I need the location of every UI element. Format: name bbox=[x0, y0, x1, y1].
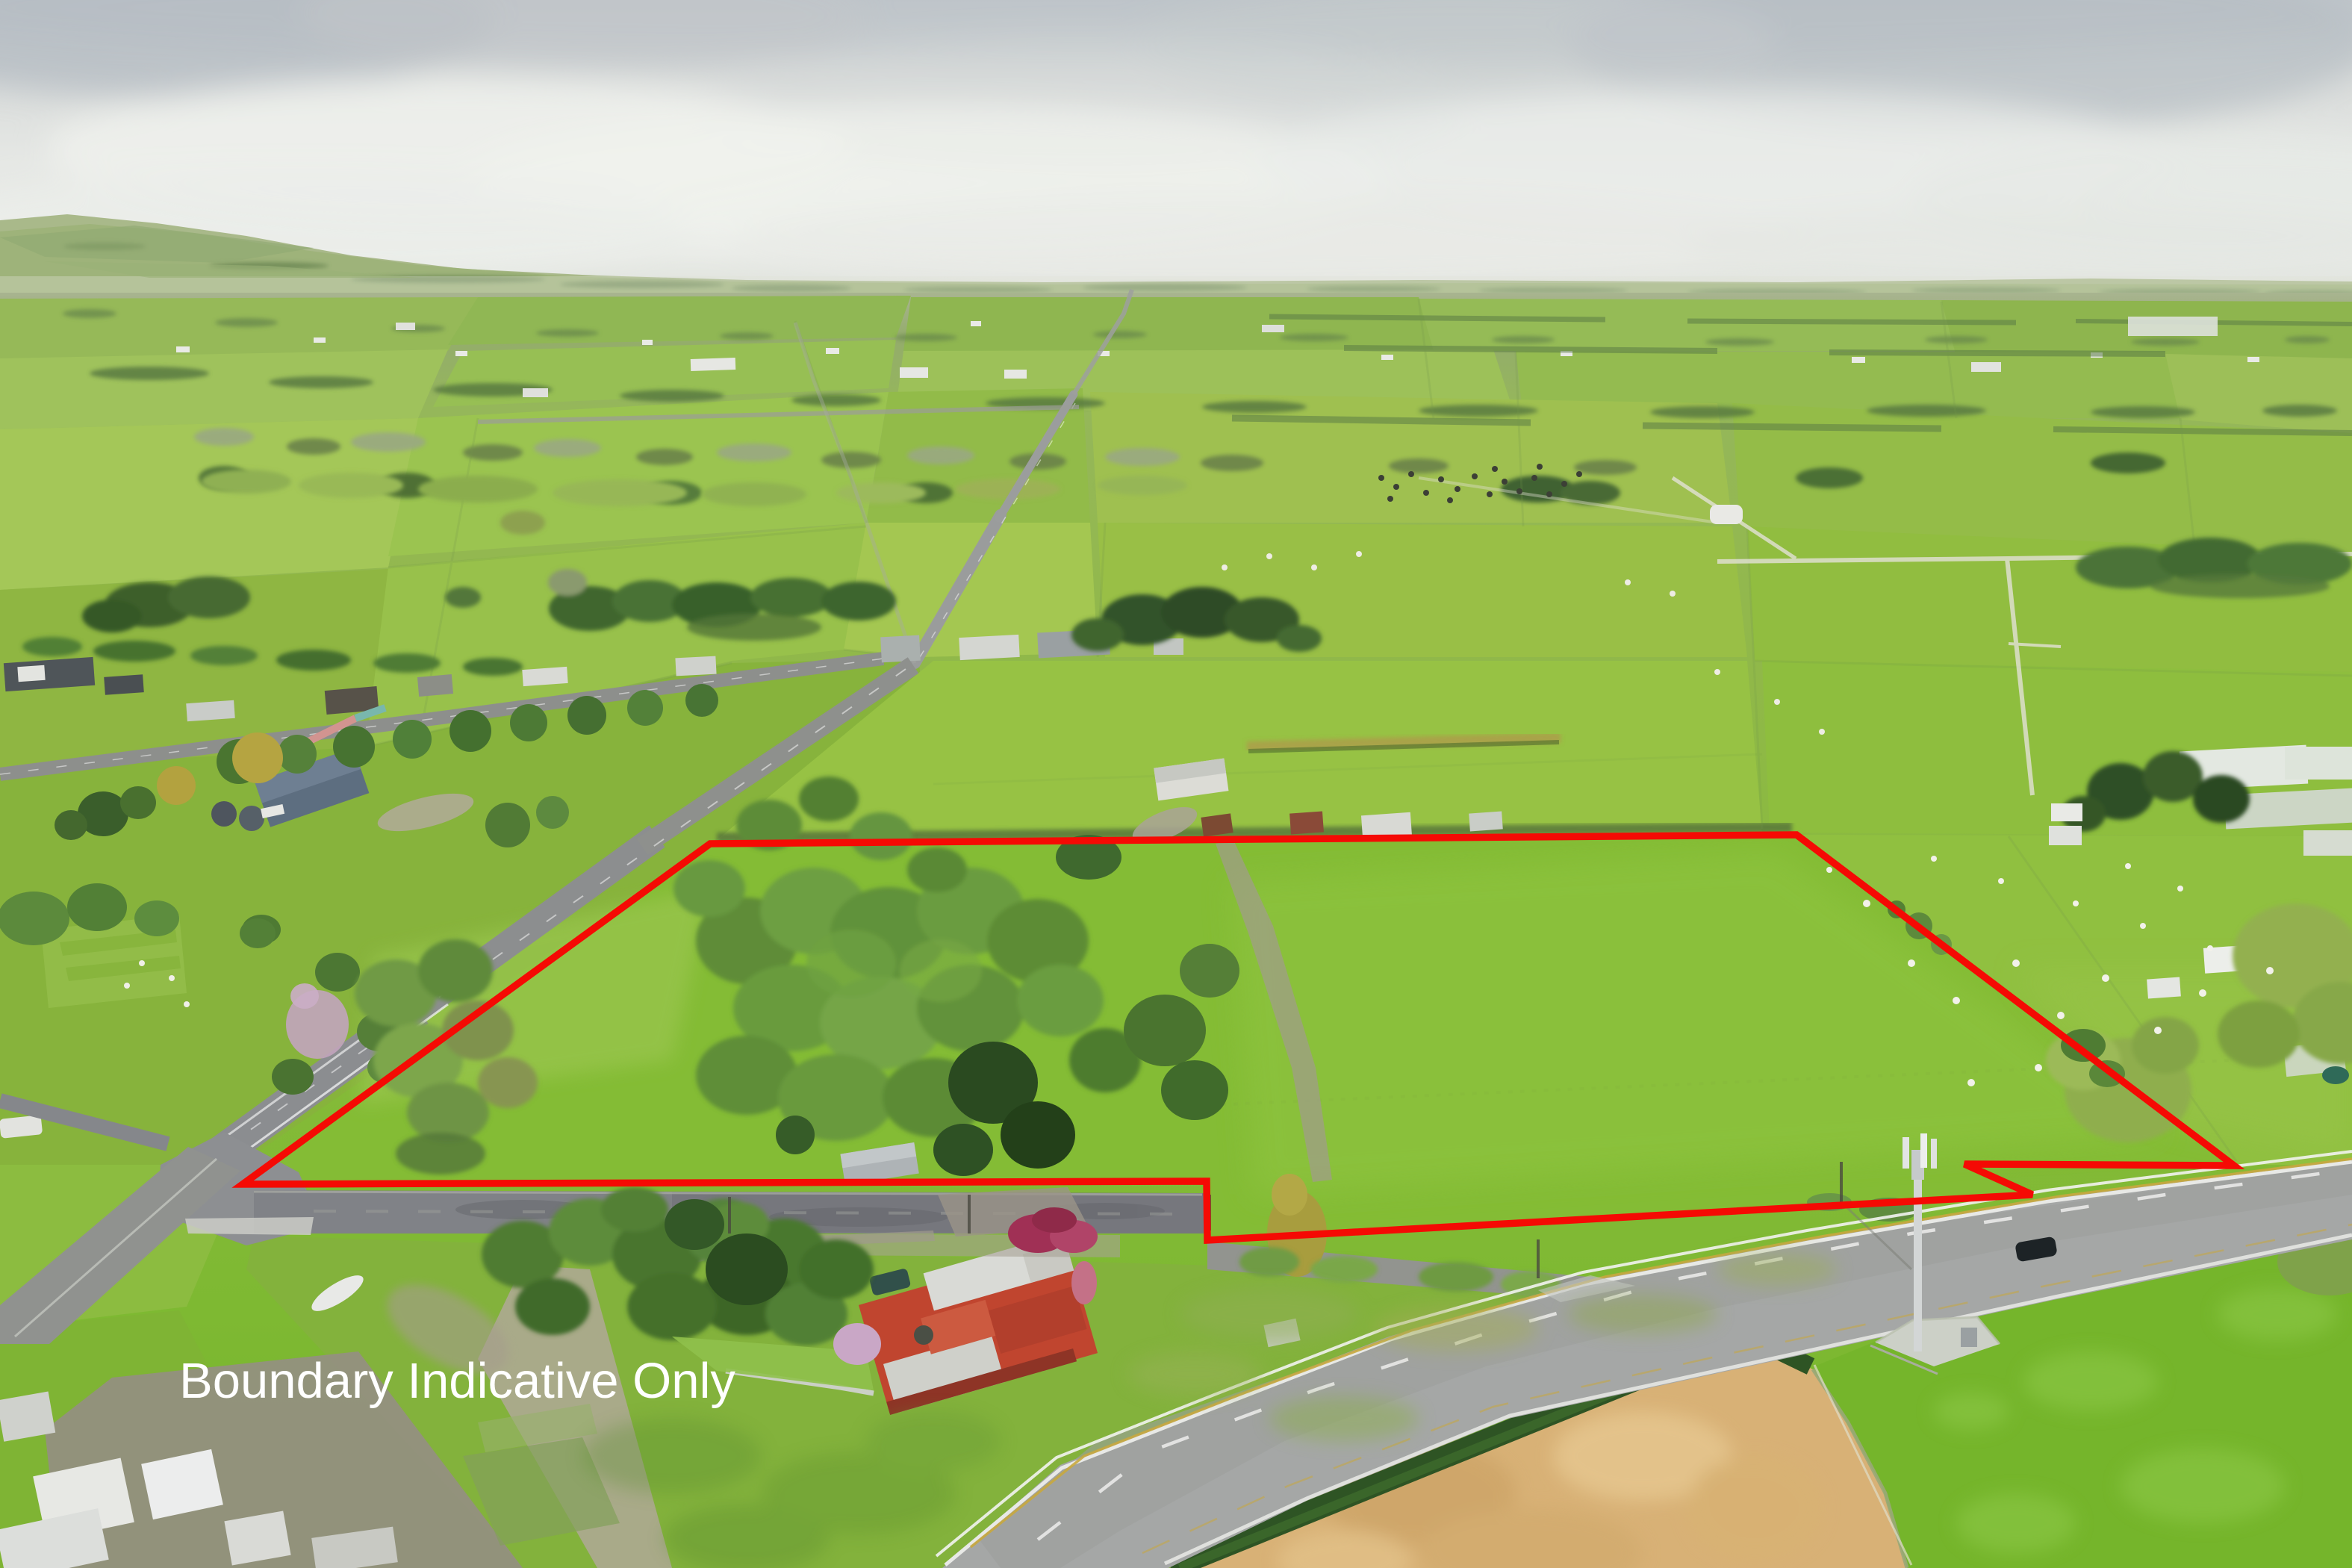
svg-text:Boundary Indicative Only: Boundary Indicative Only bbox=[179, 1353, 735, 1409]
